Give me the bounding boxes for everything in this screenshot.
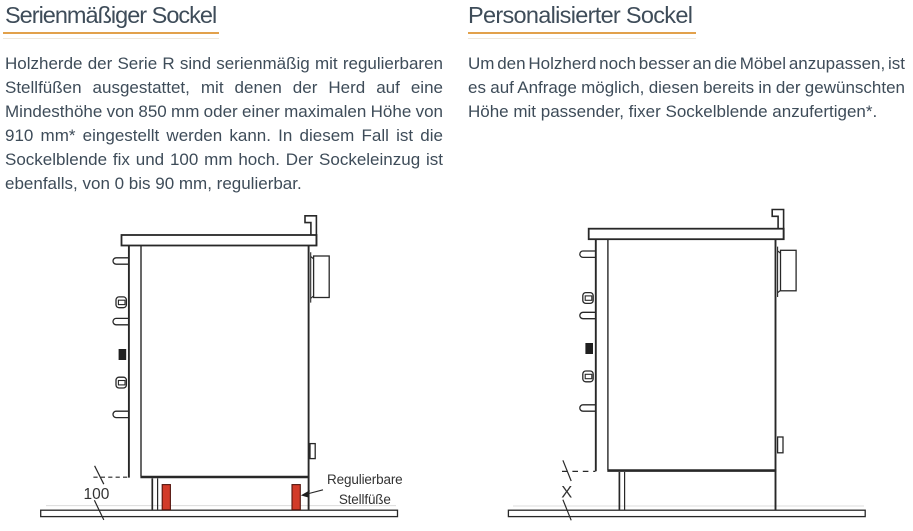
svg-text:Stellfüße: Stellfüße: [339, 492, 391, 507]
svg-text:Regulierbare: Regulierbare: [327, 472, 403, 487]
svg-text:X: X: [561, 484, 572, 502]
svg-text:100: 100: [83, 486, 109, 503]
